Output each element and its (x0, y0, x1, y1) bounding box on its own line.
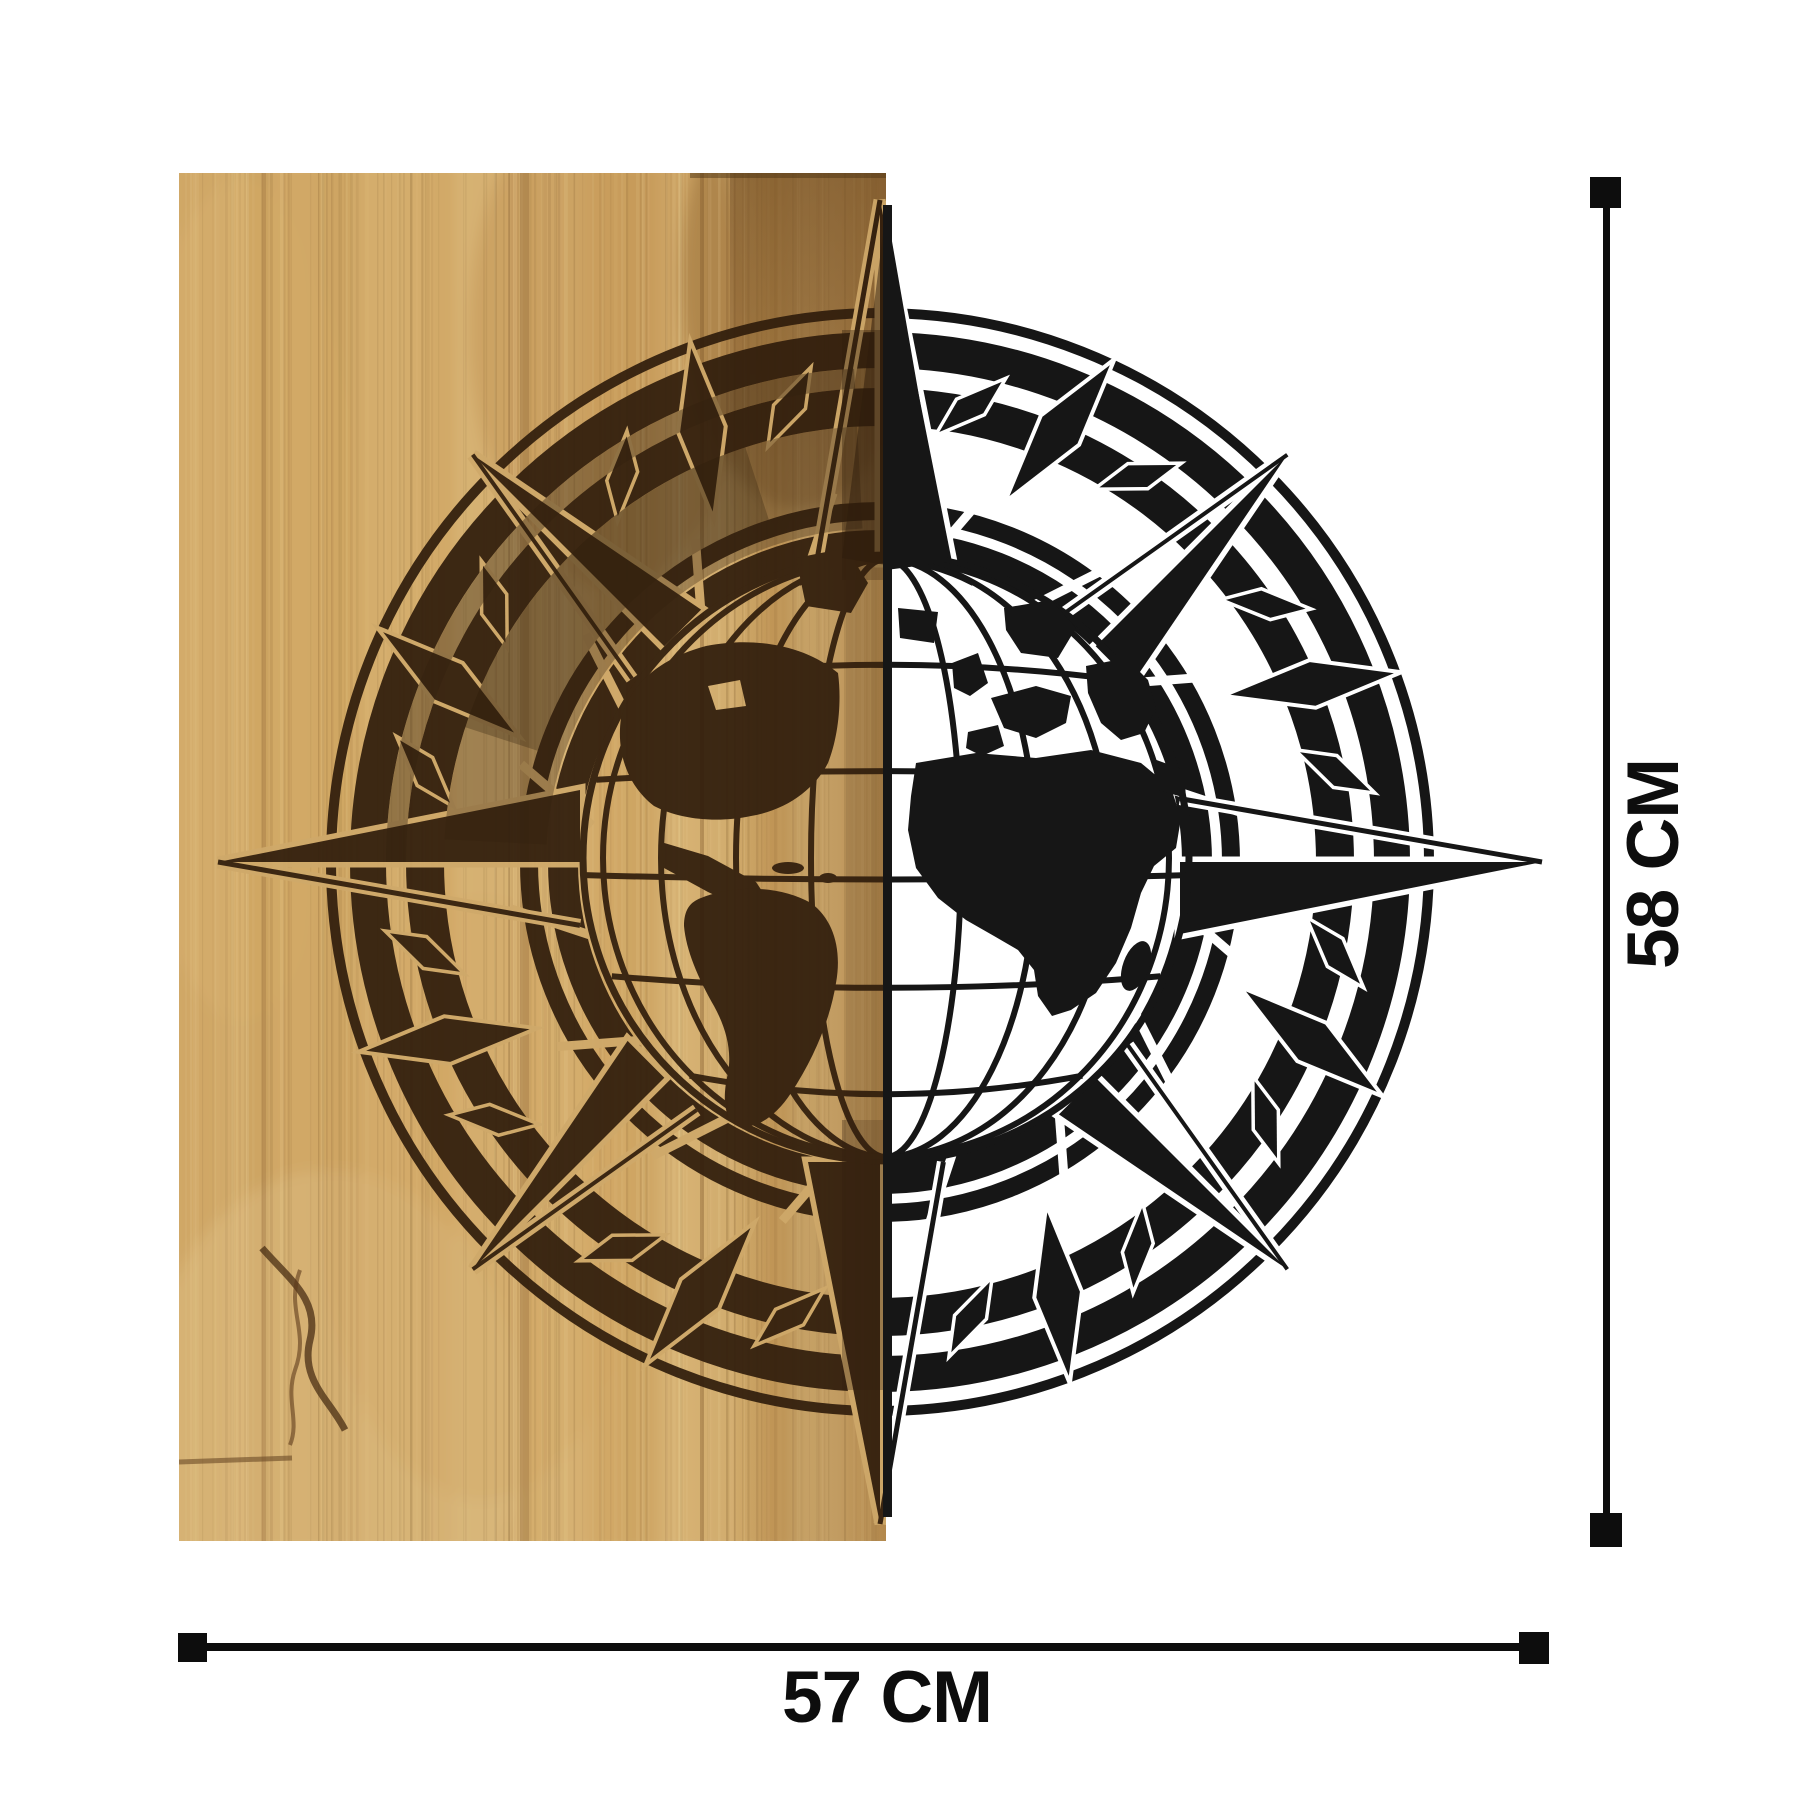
svg-text:57 CM: 57 CM (782, 1657, 992, 1738)
svg-text:58 CM: 58 CM (1613, 759, 1694, 969)
